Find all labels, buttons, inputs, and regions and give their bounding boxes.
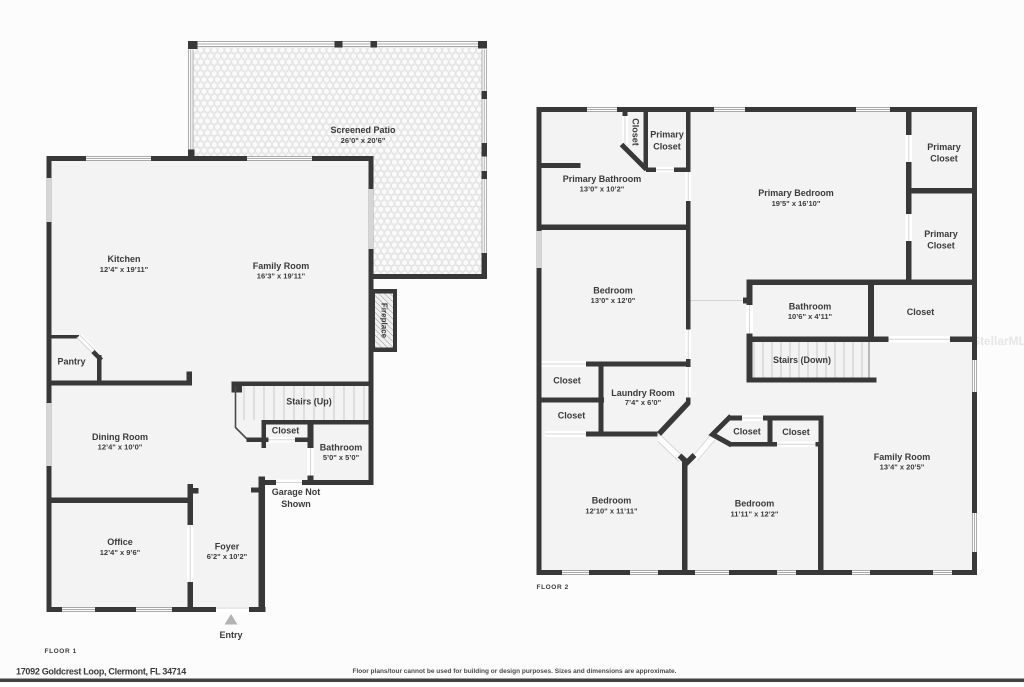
svg-text:19’5" x 16’10": 19’5" x 16’10" [772,199,821,208]
svg-text:FLOOR 2: FLOOR 2 [537,584,569,591]
svg-text:12’4" x 19’11": 12’4" x 19’11" [100,265,149,274]
svg-text:11’11" x 12’2": 11’11" x 12’2" [731,510,779,519]
svg-text:Family Room: Family Room [874,452,931,462]
svg-text:Bathroom: Bathroom [320,443,363,453]
svg-text:Closet: Closet [907,307,935,317]
svg-text:17092 Goldcrest Loop, Clermont: 17092 Goldcrest Loop, Clermont, FL 34714 [16,667,186,677]
svg-text:Bedroom: Bedroom [735,499,775,509]
svg-text:Closet: Closet [653,142,681,152]
svg-text:Kitchen: Kitchen [107,254,140,264]
svg-text:13’0" x 12’0": 13’0" x 12’0" [591,296,636,305]
svg-text:Primary: Primary [924,229,958,239]
svg-text:StellarMLS: StellarMLS [972,334,1024,348]
svg-text:7’4" x 6’0": 7’4" x 6’0" [625,398,662,407]
svg-text:Primary Bathroom: Primary Bathroom [563,174,642,184]
svg-text:13’0" x 10’2": 13’0" x 10’2" [580,185,625,194]
svg-text:Foyer: Foyer [215,542,240,552]
svg-text:Primary Bedroom: Primary Bedroom [758,188,834,198]
svg-text:Stairs (Down): Stairs (Down) [773,355,831,365]
svg-text:Primary: Primary [650,130,684,140]
svg-text:Bathroom: Bathroom [789,302,832,312]
svg-text:Bedroom: Bedroom [593,286,633,296]
svg-text:Entry: Entry [219,630,242,640]
svg-text:Pantry: Pantry [57,357,85,367]
svg-text:Closet: Closet [782,427,810,437]
svg-text:FLOOR 1: FLOOR 1 [45,648,77,655]
svg-text:Closet: Closet [930,154,958,164]
svg-text:Stairs (Up): Stairs (Up) [286,397,332,407]
svg-text:Family Room: Family Room [253,261,310,271]
svg-text:Laundry Room: Laundry Room [611,388,675,398]
svg-text:Fireplace: Fireplace [380,303,389,339]
svg-text:12’10" x 11’11": 12’10" x 11’11" [585,507,638,516]
svg-text:12’4" x 10’0": 12’4" x 10’0" [98,443,143,452]
svg-text:Closet: Closet [558,411,586,421]
svg-text:12’4" x 9’6": 12’4" x 9’6" [100,548,141,557]
svg-text:5’0" x 5’0": 5’0" x 5’0" [323,453,360,462]
svg-text:Bedroom: Bedroom [592,496,632,506]
svg-text:Garage Not: Garage Not [272,487,321,497]
svg-text:16’3" x 19’11": 16’3" x 19’11" [257,272,306,281]
svg-text:Office: Office [107,537,133,547]
svg-text:Closet: Closet [631,118,641,146]
svg-text:Closet: Closet [927,241,955,251]
svg-text:13’4" x 20’5": 13’4" x 20’5" [880,463,925,472]
svg-text:26’0" x 20’6": 26’0" x 20’6" [341,136,386,145]
svg-text:Shown: Shown [281,499,311,509]
svg-text:Closet: Closet [553,376,581,386]
svg-text:Floor plans/tour cannot be use: Floor plans/tour cannot be used for buil… [353,668,677,675]
svg-text:6’2" x 10’2": 6’2" x 10’2" [207,552,248,561]
svg-text:Primary: Primary [927,142,961,152]
svg-text:Closet: Closet [733,427,761,437]
svg-text:Dining Room: Dining Room [92,432,148,442]
svg-text:Closet: Closet [272,426,300,436]
svg-text:10’6" x 4’11": 10’6" x 4’11" [788,312,833,321]
svg-text:Screened Patio: Screened Patio [330,125,396,135]
